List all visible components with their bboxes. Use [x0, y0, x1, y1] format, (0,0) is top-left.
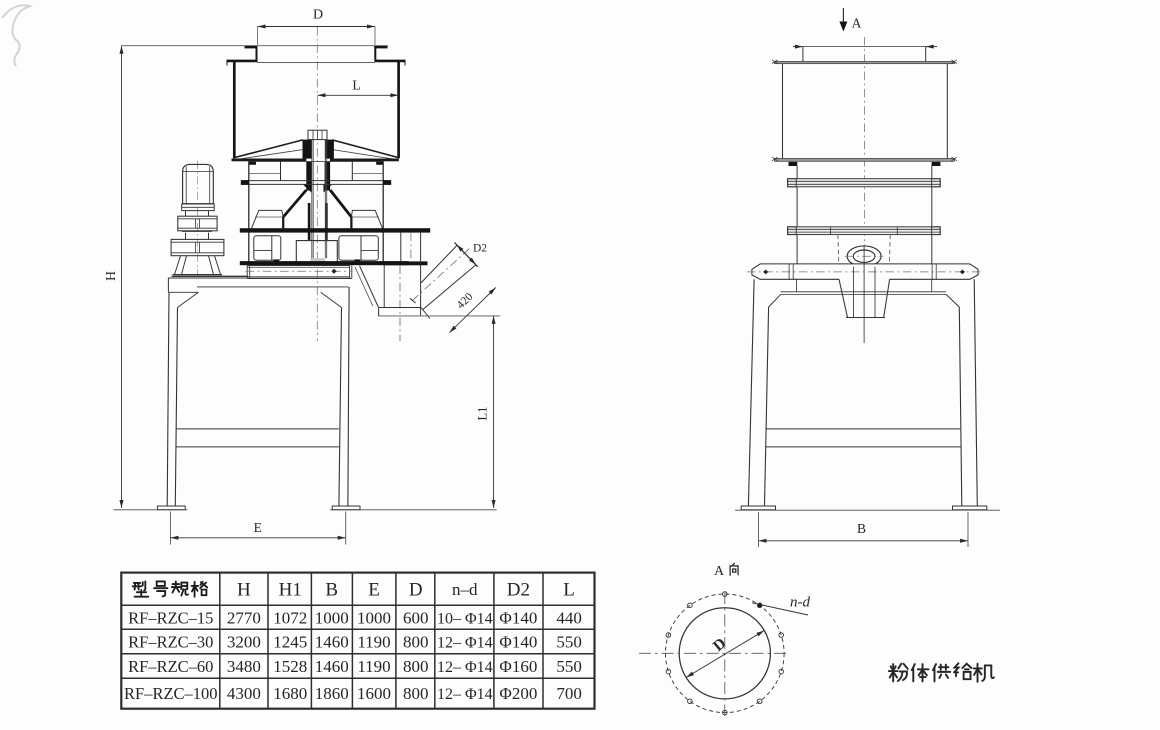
svg-text:1190: 1190: [357, 633, 390, 652]
svg-text:550: 550: [556, 657, 582, 676]
svg-text:D2: D2: [507, 580, 530, 601]
svg-text:H: H: [103, 271, 118, 281]
svg-text:440: 440: [556, 608, 582, 627]
svg-text:3200: 3200: [227, 633, 261, 652]
svg-text:D2: D2: [473, 243, 487, 255]
svg-text:800: 800: [403, 657, 429, 676]
svg-text:10– Φ14: 10– Φ14: [437, 610, 493, 627]
svg-text:550: 550: [556, 633, 582, 652]
svg-text:D: D: [313, 8, 323, 23]
svg-text:1680: 1680: [273, 684, 307, 703]
svg-text:800: 800: [403, 684, 429, 703]
svg-text:L: L: [563, 580, 575, 601]
svg-text:L: L: [352, 78, 360, 93]
svg-text:12– Φ14: 12– Φ14: [437, 659, 493, 676]
svg-text:Φ140: Φ140: [499, 608, 537, 627]
svg-text:3480: 3480: [227, 657, 261, 676]
svg-text:D: D: [409, 580, 423, 601]
svg-text:1528: 1528: [273, 657, 307, 676]
svg-text:RF–RZC–60: RF–RZC–60: [128, 657, 213, 676]
svg-text:L1: L1: [476, 407, 490, 421]
svg-text:A: A: [714, 564, 725, 579]
svg-text:n-d: n-d: [790, 595, 810, 611]
svg-text:RF–RZC–30: RF–RZC–30: [128, 633, 213, 652]
svg-text:RF–RZC–100: RF–RZC–100: [124, 684, 218, 703]
svg-text:1000: 1000: [315, 608, 349, 627]
svg-text:2770: 2770: [227, 608, 261, 627]
svg-text:1190: 1190: [357, 657, 390, 676]
svg-text:E: E: [254, 520, 262, 535]
svg-text:600: 600: [403, 608, 429, 627]
svg-text:1460: 1460: [315, 633, 349, 652]
svg-text:12– Φ14: 12– Φ14: [437, 635, 493, 652]
svg-text:1460: 1460: [315, 657, 349, 676]
svg-text:800: 800: [403, 633, 429, 652]
svg-text:Φ160: Φ160: [499, 657, 537, 676]
svg-text:Φ200: Φ200: [499, 684, 537, 703]
svg-text:Φ140: Φ140: [499, 633, 537, 652]
svg-text:A: A: [852, 16, 862, 31]
svg-text:1000: 1000: [357, 608, 391, 627]
svg-text:RF–RZC–15: RF–RZC–15: [128, 608, 213, 627]
svg-text:4300: 4300: [227, 684, 261, 703]
svg-text:1860: 1860: [315, 684, 349, 703]
svg-text:1072: 1072: [273, 608, 307, 627]
svg-text:1600: 1600: [357, 684, 391, 703]
svg-text:1245: 1245: [273, 633, 307, 652]
svg-text:n–d: n–d: [452, 580, 478, 599]
svg-text:B: B: [325, 580, 338, 601]
svg-text:700: 700: [556, 684, 582, 703]
svg-text:B: B: [857, 521, 866, 536]
svg-text:H1: H1: [279, 580, 302, 601]
svg-text:H: H: [237, 580, 251, 601]
svg-text:E: E: [368, 580, 380, 601]
svg-text:12– Φ14: 12– Φ14: [437, 686, 493, 703]
